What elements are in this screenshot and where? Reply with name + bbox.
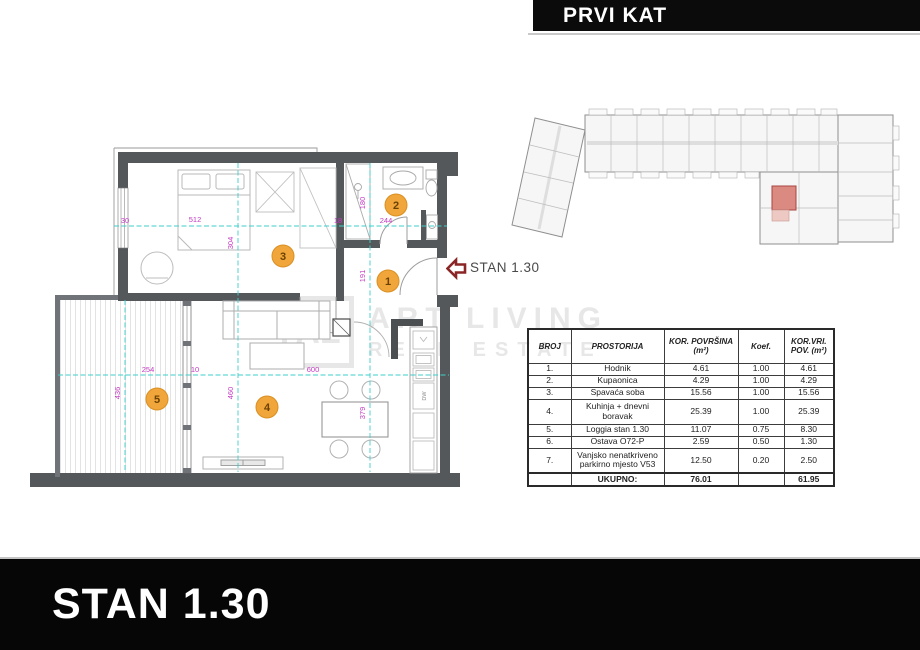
- closet: [300, 168, 336, 248]
- svg-text:2: 2: [393, 200, 399, 212]
- dim-kitchen-h: 379: [358, 407, 367, 420]
- room-badge-3: 3: [272, 245, 294, 267]
- cell-broj: 7.: [528, 448, 571, 473]
- dim-bedroom-h: 304: [226, 237, 235, 250]
- table-row: 2. Kupaonica 4.29 1.00 4.29: [528, 375, 834, 387]
- area-table-container: BROJ PROSTORIJA KOR. POVRŠINA (m²) Koef.…: [527, 328, 833, 487]
- cell-povrsina: 12.50: [664, 448, 738, 473]
- floor-plan: DW 30 512 18 244 304 180 191 254 10 600 …: [28, 143, 468, 505]
- cell-total-vrijednost: 61.95: [784, 473, 834, 486]
- cell-total-povrsina: 76.01: [664, 473, 738, 486]
- dishwasher-label: DW: [422, 391, 428, 401]
- cell-koef: 0.50: [738, 436, 784, 448]
- cell-povrsina: 25.39: [664, 399, 738, 424]
- cell-koef: 1.00: [738, 399, 784, 424]
- loggia-floor: [60, 300, 183, 473]
- cell-broj: 5.: [528, 424, 571, 436]
- cell-povrsina: 2.59: [664, 436, 738, 448]
- cell-povrsina: 4.29: [664, 375, 738, 387]
- room-badge-1: 1: [377, 270, 399, 292]
- bathroom-sink: [383, 167, 423, 189]
- entry-door: [400, 258, 437, 295]
- unit-pointer-arrow-icon: [446, 257, 467, 280]
- cell-koef-empty: [738, 473, 784, 486]
- svg-text:4: 4: [264, 402, 271, 414]
- room-badge-2: 2: [385, 194, 407, 216]
- dim-living-h: 460: [226, 387, 235, 400]
- dim-bath-wall: 18: [334, 216, 342, 225]
- table-row: 1. Hodnik 4.61 1.00 4.61: [528, 363, 834, 375]
- page-title: PRVI KAT: [533, 0, 920, 31]
- cell-vrijednost: 25.39: [784, 399, 834, 424]
- cell-broj: 3.: [528, 387, 571, 399]
- cell-broj: 2.: [528, 375, 571, 387]
- col-header-vrijednost: KOR.VRI. POV. (m²): [784, 329, 834, 363]
- overview-highlighted-loggia: [772, 210, 789, 221]
- cell-vrijednost: 15.56: [784, 387, 834, 399]
- room-badge-5: 5: [146, 388, 168, 410]
- cell-koef: 0.75: [738, 424, 784, 436]
- cell-prostorija: Kuhinja + dnevni boravak: [571, 399, 664, 424]
- cell-broj: 1.: [528, 363, 571, 375]
- cell-prostorija: Loggia stan 1.30: [571, 424, 664, 436]
- dim-living-w: 600: [307, 365, 320, 374]
- header-divider: [528, 33, 920, 35]
- dining-table: [322, 402, 388, 437]
- dim-bath-h: 180: [358, 197, 367, 210]
- col-header-koef: Koef.: [738, 329, 784, 363]
- cell-povrsina: 15.56: [664, 387, 738, 399]
- shaft: [333, 319, 389, 357]
- toilet: [426, 170, 437, 196]
- cell-koef: 1.00: [738, 363, 784, 375]
- col-header-prostorija: PROSTORIJA: [571, 329, 664, 363]
- svg-text:3: 3: [280, 251, 286, 263]
- cell-vrijednost: 8.30: [784, 424, 834, 436]
- unit-pointer-label: STAN 1.30: [470, 257, 540, 279]
- svg-text:5: 5: [154, 394, 160, 406]
- cell-koef: 1.00: [738, 375, 784, 387]
- wardrobe: [256, 172, 294, 212]
- building-overview: [505, 96, 915, 246]
- cell-povrsina: 11.07: [664, 424, 738, 436]
- dim-loggia-w: 254: [142, 365, 155, 374]
- table-row: 5. Loggia stan 1.30 11.07 0.75 8.30: [528, 424, 834, 436]
- dim-divider: 10: [191, 365, 199, 374]
- col-header-povrsina: KOR. POVRŠINA (m²): [664, 329, 738, 363]
- dim-loggia-h: 436: [113, 387, 122, 400]
- cell-prostorija: Spavaća soba: [571, 387, 664, 399]
- coffee-table: [250, 343, 304, 369]
- dim-bath-w: 244: [380, 216, 393, 225]
- area-table: BROJ PROSTORIJA KOR. POVRŠINA (m²) Koef.…: [527, 328, 835, 487]
- cell-koef: 1.00: [738, 387, 784, 399]
- cell-broj: 4.: [528, 399, 571, 424]
- cell-vrijednost: 2.50: [784, 448, 834, 473]
- table-header-row: BROJ PROSTORIJA KOR. POVRŠINA (m²) Koef.…: [528, 329, 834, 363]
- dim-hall-h: 191: [358, 270, 367, 283]
- overview-highlighted-unit: [772, 186, 796, 210]
- svg-text:1: 1: [385, 276, 391, 288]
- table-row: 4. Kuhinja + dnevni boravak 25.39 1.00 2…: [528, 399, 834, 424]
- unit-title: STAN 1.30: [0, 559, 920, 650]
- tv-stand: [203, 457, 283, 469]
- cell-vrijednost: 1.30: [784, 436, 834, 448]
- washing-machine: [427, 215, 438, 239]
- bed: [178, 170, 250, 250]
- cell-prostorija: Ostava O72-P: [571, 436, 664, 448]
- cell-povrsina: 4.61: [664, 363, 738, 375]
- overview-east-wing: [838, 115, 893, 242]
- dim-bedroom-w: 512: [189, 215, 202, 224]
- armchair: [141, 252, 173, 284]
- col-header-broj: BROJ: [528, 329, 571, 363]
- cell-prostorija: Vanjsko nenatkriveno parkirno mjesto V53: [571, 448, 664, 473]
- cell-prostorija: Hodnik: [571, 363, 664, 375]
- cell-broj: 6.: [528, 436, 571, 448]
- cell-prostorija: Kupaonica: [571, 375, 664, 387]
- room-badge-4: 4: [256, 396, 278, 418]
- cell-broj-empty: [528, 473, 571, 486]
- cell-vrijednost: 4.61: [784, 363, 834, 375]
- table-row: 3. Spavaća soba 15.56 1.00 15.56: [528, 387, 834, 399]
- cell-vrijednost: 4.29: [784, 375, 834, 387]
- cell-koef: 0.20: [738, 448, 784, 473]
- sofa: [223, 301, 330, 339]
- table-row: 6. Ostava O72-P 2.59 0.50 1.30: [528, 436, 834, 448]
- table-row: 7. Vanjsko nenatkriveno parkirno mjesto …: [528, 448, 834, 473]
- dim-left-wall: 30: [121, 216, 129, 225]
- table-total-row: UKUPNO: 76.01 61.95: [528, 473, 834, 486]
- cell-total-label: UKUPNO:: [571, 473, 664, 486]
